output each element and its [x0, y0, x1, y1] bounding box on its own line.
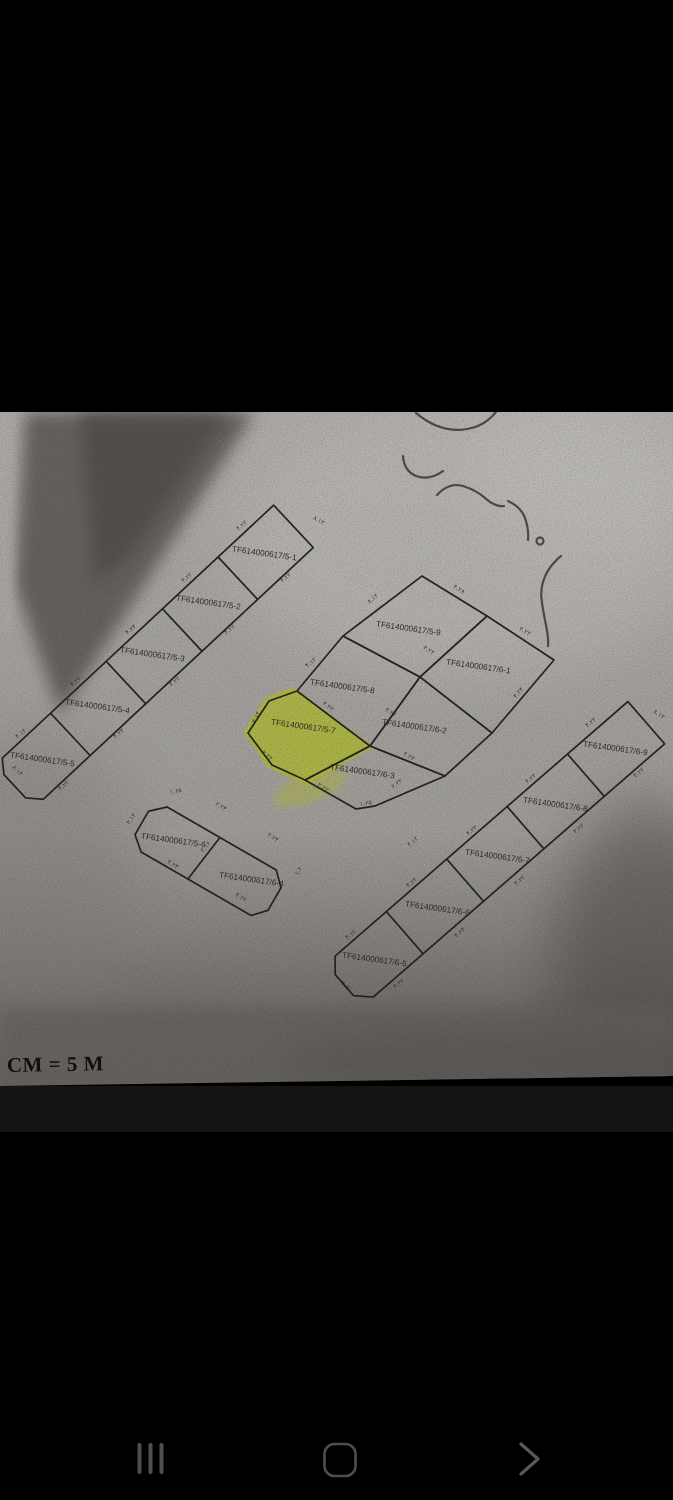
- paper-grain-texture: [0, 412, 673, 1086]
- phone-screen: TF614000617/5-1 TF614000617/5-2 TF614000…: [0, 0, 673, 1500]
- recents-icon: [138, 1443, 164, 1474]
- photo-of-survey-plan: TF614000617/5-1 TF614000617/5-2 TF614000…: [0, 380, 673, 1140]
- photo-bottom-residue: [0, 1086, 673, 1132]
- recents-button[interactable]: [138, 1443, 164, 1474]
